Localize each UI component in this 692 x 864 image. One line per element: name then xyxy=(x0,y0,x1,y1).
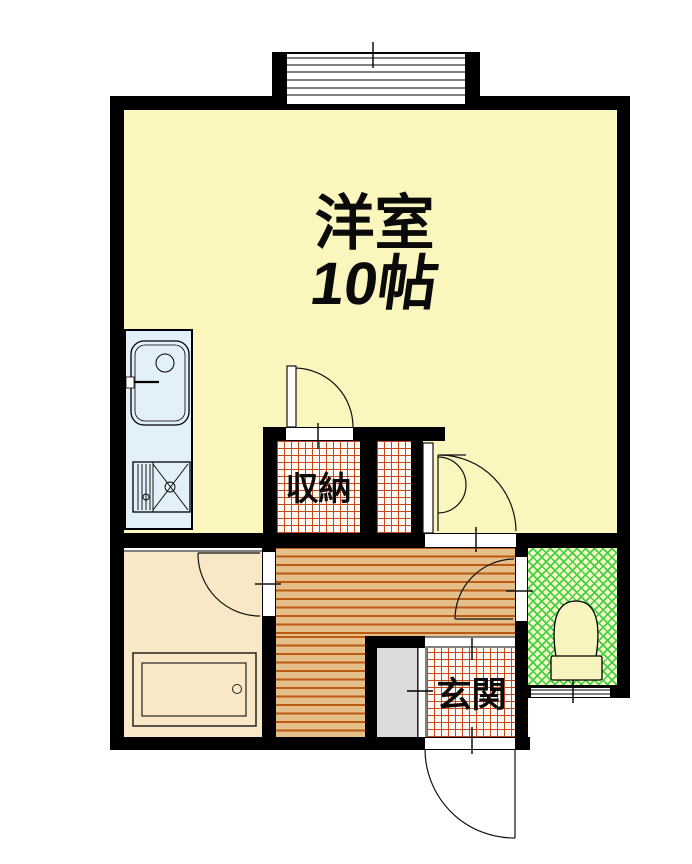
hallway-floor-lower xyxy=(276,636,365,737)
toilet-window xyxy=(531,687,610,698)
wall-closet-divider xyxy=(360,441,377,548)
entrance-label: 玄関 xyxy=(427,677,516,715)
floor-plan: 洋室 10帖 収納 玄関 xyxy=(0,0,692,864)
window-post-right xyxy=(467,52,480,110)
shoe-cabinet xyxy=(377,648,418,737)
wall-left xyxy=(110,96,124,750)
wall-closet-left xyxy=(263,427,277,548)
window-post-left xyxy=(272,52,285,110)
main-door-sill xyxy=(425,533,516,548)
wall-bathroom-right-lower xyxy=(262,616,276,737)
balcony-window xyxy=(285,52,467,106)
kitchen-counter xyxy=(124,329,193,530)
bathroom-door-sill xyxy=(262,552,276,616)
toilet-room-floor xyxy=(528,547,617,685)
main-room-size: 10帖 xyxy=(248,254,501,314)
closet-door-sill xyxy=(286,427,353,441)
bathroom-floor xyxy=(124,552,262,737)
entrance-step xyxy=(425,636,516,648)
main-room-name: 洋室 xyxy=(252,194,497,254)
wall-bottom xyxy=(110,737,425,750)
wall-toilet-left-lower xyxy=(515,621,528,737)
wall-mid-right xyxy=(516,533,630,548)
hallway-floor-upper xyxy=(276,547,515,636)
wall-right xyxy=(617,96,630,698)
closet-label: 収納 xyxy=(277,471,360,507)
entry-door-sill xyxy=(425,737,515,750)
wall-bottom-stub xyxy=(515,737,530,750)
wall-shoe-left xyxy=(365,636,377,737)
closet2-floor xyxy=(377,441,411,533)
wall-closet-right xyxy=(411,441,423,548)
main-room-label: 洋室 10帖 xyxy=(252,194,497,314)
toilet-door-sill xyxy=(515,557,528,621)
wall-toilet-left-upper xyxy=(515,547,528,557)
